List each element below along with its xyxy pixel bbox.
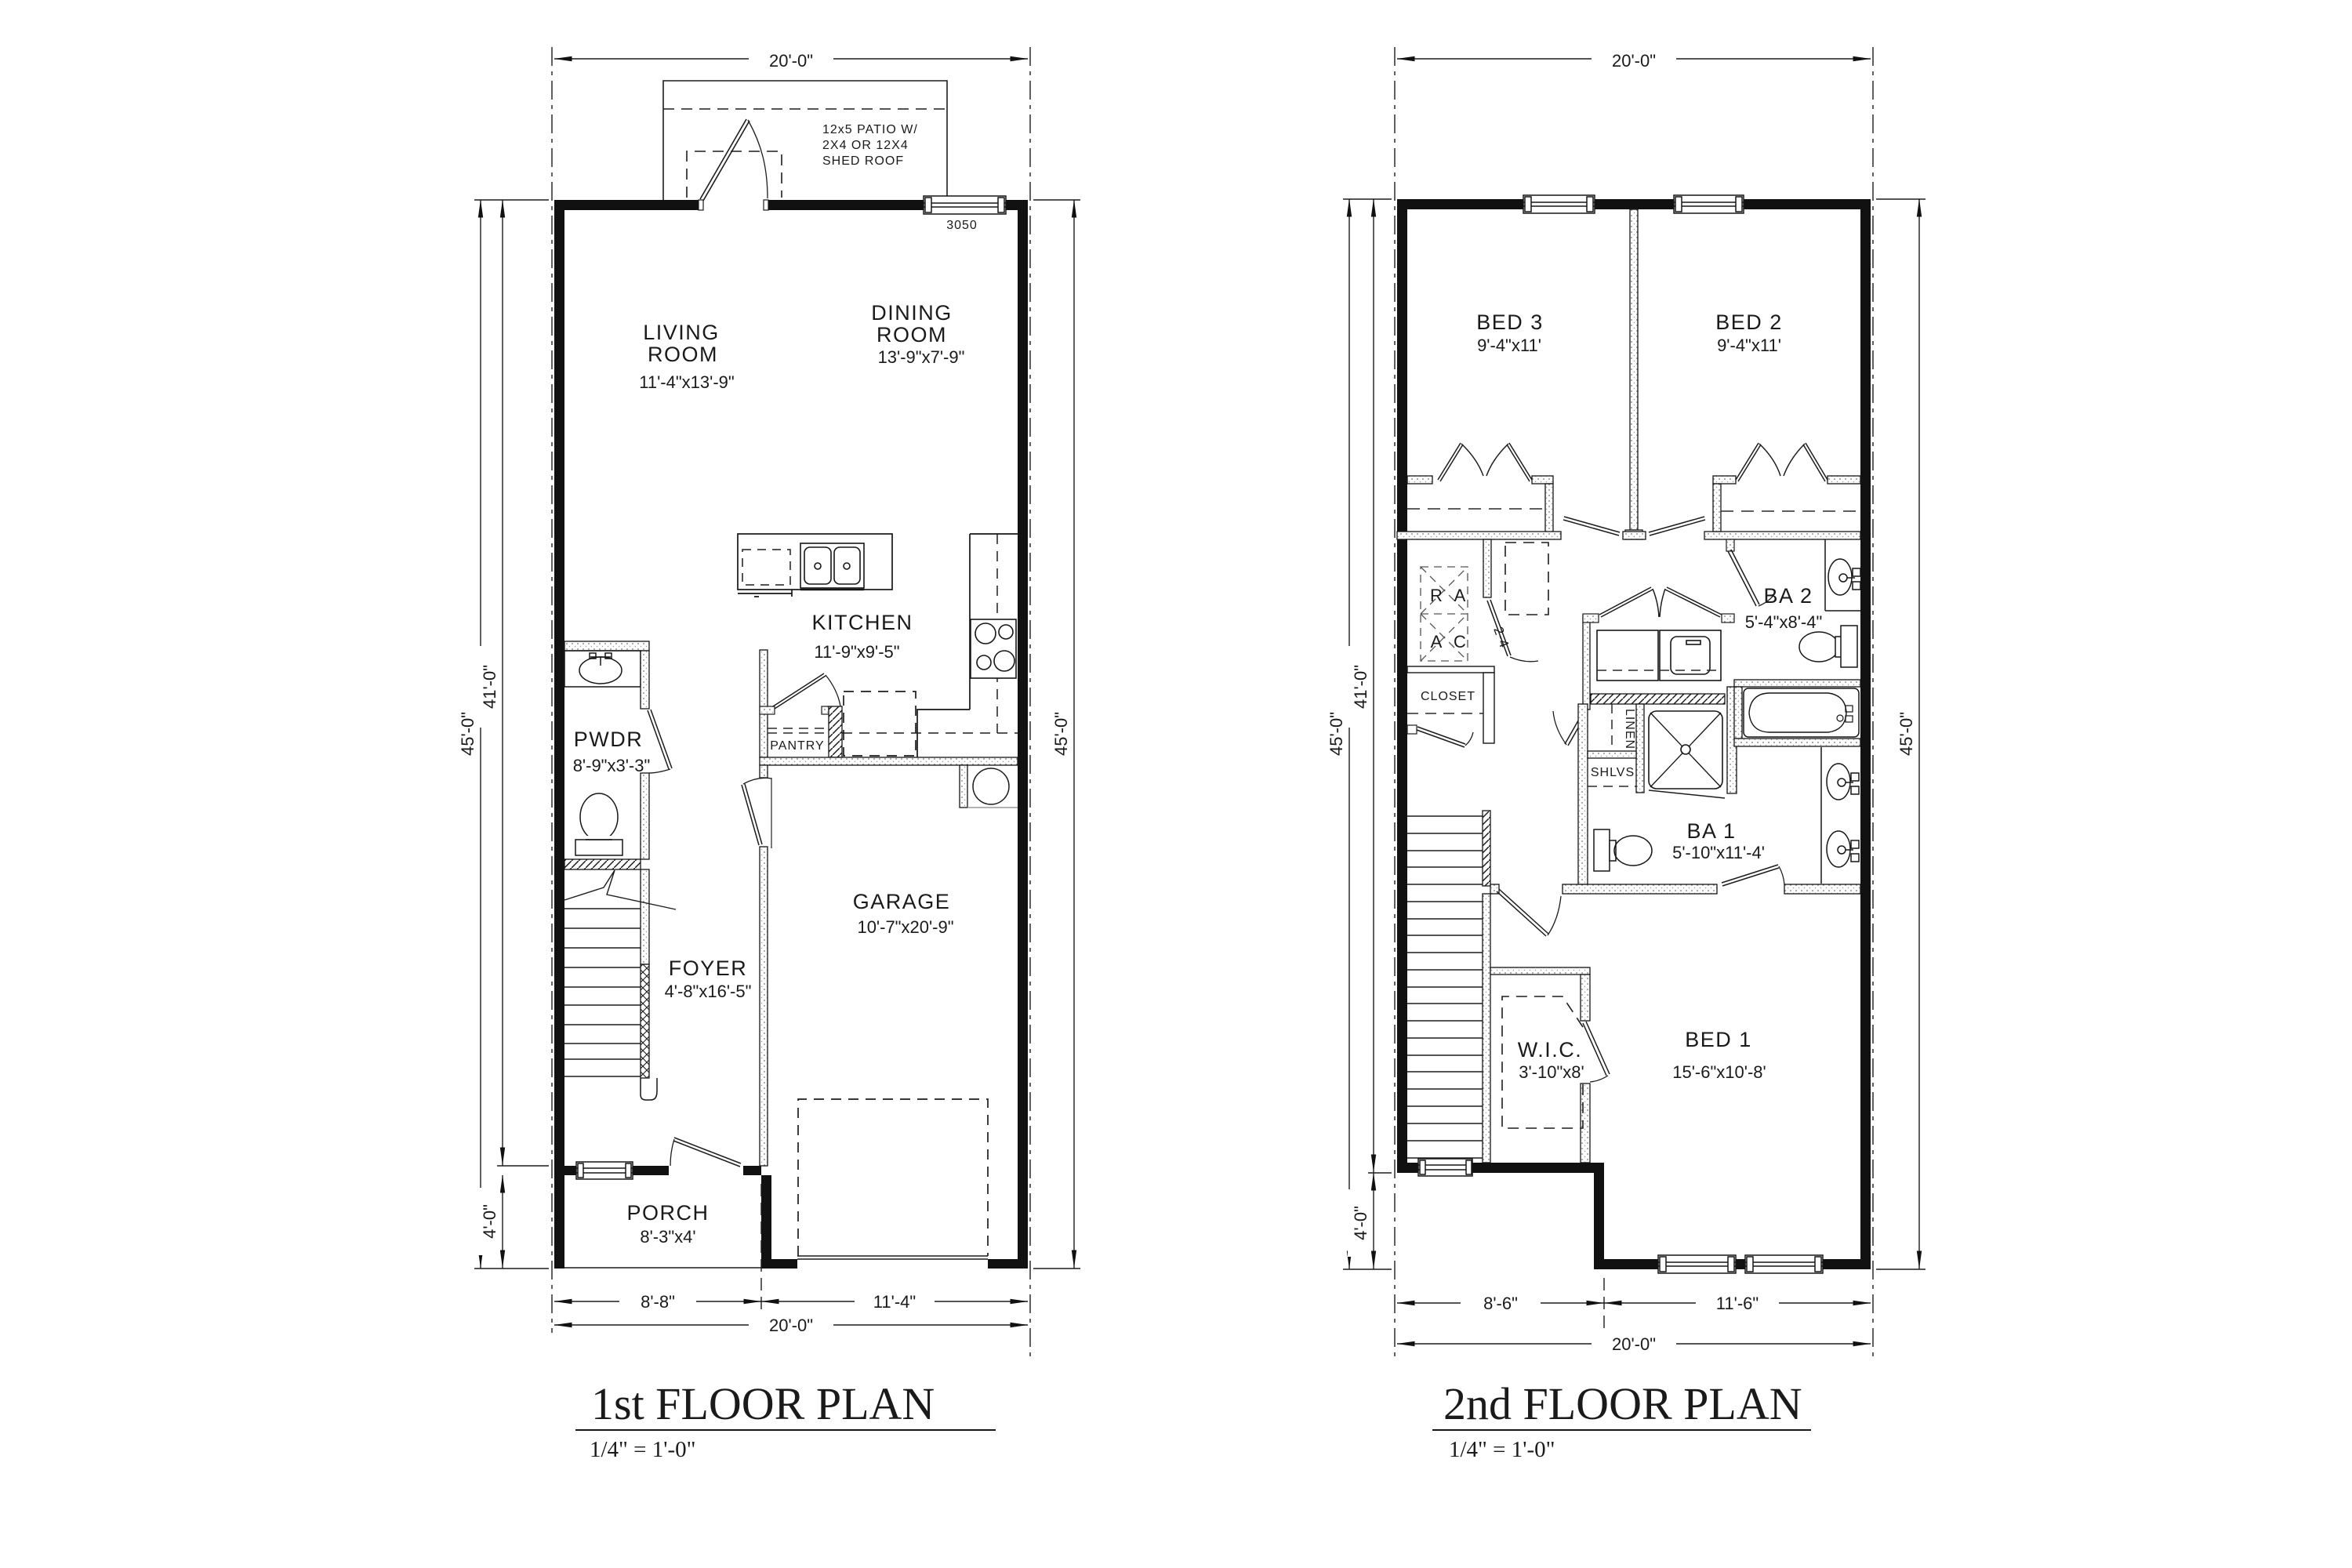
svg-text:PORCH: PORCH — [626, 1201, 709, 1225]
svg-text:4'-0": 4'-0" — [1351, 1206, 1370, 1240]
svg-text:11'-4": 11'-4" — [873, 1292, 916, 1312]
svg-text:4'-8"x16'-5": 4'-8"x16'-5" — [665, 982, 752, 1001]
svg-text:2X4 OR 12X4: 2X4 OR 12X4 — [822, 139, 909, 152]
svg-text:LINEN: LINEN — [1623, 709, 1636, 750]
svg-text:4'-0": 4'-0" — [480, 1204, 499, 1239]
svg-text:KITCHEN: KITCHEN — [811, 611, 913, 634]
svg-text:SHLVS: SHLVS — [1591, 766, 1635, 779]
svg-text:8'-3"x4': 8'-3"x4' — [640, 1227, 695, 1247]
svg-text:BED 2: BED 2 — [1715, 310, 1783, 334]
svg-text:8'-9"x3'-3": 8'-9"x3'-3" — [573, 756, 651, 775]
svg-text:GARAGE: GARAGE — [853, 890, 951, 913]
svg-text:45'-0": 45'-0" — [1896, 712, 1916, 756]
svg-text:SHED ROOF: SHED ROOF — [822, 154, 904, 168]
svg-text:20'-0": 20'-0" — [1612, 51, 1656, 71]
svg-text:PANTRY: PANTRY — [770, 739, 824, 753]
svg-text:C: C — [1454, 632, 1466, 652]
svg-text:20'-0": 20'-0" — [1612, 1334, 1656, 1354]
svg-text:12x5 PATIO W/: 12x5 PATIO W/ — [822, 123, 918, 136]
svg-text:BA 2: BA 2 — [1763, 584, 1813, 608]
svg-text:1/4" = 1'-0": 1/4" = 1'-0" — [590, 1437, 695, 1462]
svg-text:41'-0": 41'-0" — [1351, 665, 1370, 709]
svg-text:3'-10"x8': 3'-10"x8' — [1519, 1062, 1584, 1082]
svg-text:41'-0": 41'-0" — [480, 665, 499, 709]
svg-text:11'-6": 11'-6" — [1716, 1294, 1759, 1313]
svg-text:CLOSET: CLOSET — [1421, 690, 1475, 703]
svg-text:5'-10"x11'-4': 5'-10"x11'-4' — [1672, 843, 1765, 862]
svg-text:13'-9"x7'-9": 13'-9"x7'-9" — [878, 347, 965, 367]
svg-text:LIVING: LIVING — [643, 321, 720, 344]
svg-text:PWDR: PWDR — [574, 728, 644, 751]
svg-text:FOYER: FOYER — [669, 956, 748, 980]
svg-text:11'-9"x9'-5": 11'-9"x9'-5" — [814, 642, 899, 662]
svg-text:45'-0": 45'-0" — [1327, 712, 1346, 756]
svg-text:5'-4"x8'-4": 5'-4"x8'-4" — [1745, 612, 1823, 632]
svg-text:9'-4"x11': 9'-4"x11' — [1717, 336, 1781, 355]
svg-text:BED 3: BED 3 — [1476, 310, 1544, 334]
svg-text:DINING: DINING — [871, 301, 953, 325]
svg-text:A: A — [1431, 632, 1443, 652]
svg-text:8'-8": 8'-8" — [641, 1292, 675, 1312]
svg-text:11'-4"x13'-9": 11'-4"x13'-9" — [639, 372, 734, 392]
svg-text:W.I.C.: W.I.C. — [1518, 1038, 1583, 1062]
svg-text:A: A — [1454, 586, 1466, 605]
svg-text:3050: 3050 — [946, 219, 978, 232]
svg-text:45'-0": 45'-0" — [1051, 712, 1071, 756]
svg-text:ROOM: ROOM — [648, 343, 718, 366]
svg-text:20'-0": 20'-0" — [769, 51, 813, 71]
svg-text:15'-6"x10'-8': 15'-6"x10'-8' — [1672, 1062, 1766, 1082]
svg-text:2nd FLOOR PLAN: 2nd FLOOR PLAN — [1443, 1378, 1802, 1429]
svg-text:BA 1: BA 1 — [1686, 819, 1736, 843]
svg-text:45'-0": 45'-0" — [458, 712, 477, 756]
svg-text:10'-7"x20'-9": 10'-7"x20'-9" — [857, 917, 953, 937]
svg-text:8'-6": 8'-6" — [1483, 1294, 1518, 1313]
svg-text:ROOM: ROOM — [877, 323, 947, 347]
svg-text:BED 1: BED 1 — [1685, 1028, 1752, 1051]
svg-text:1/4" = 1'-0": 1/4" = 1'-0" — [1449, 1437, 1555, 1462]
svg-text:R: R — [1430, 586, 1443, 605]
svg-text:1st FLOOR PLAN: 1st FLOOR PLAN — [591, 1378, 935, 1429]
svg-text:9'-4"x11': 9'-4"x11' — [1477, 336, 1541, 355]
svg-text:20'-0": 20'-0" — [769, 1316, 813, 1335]
